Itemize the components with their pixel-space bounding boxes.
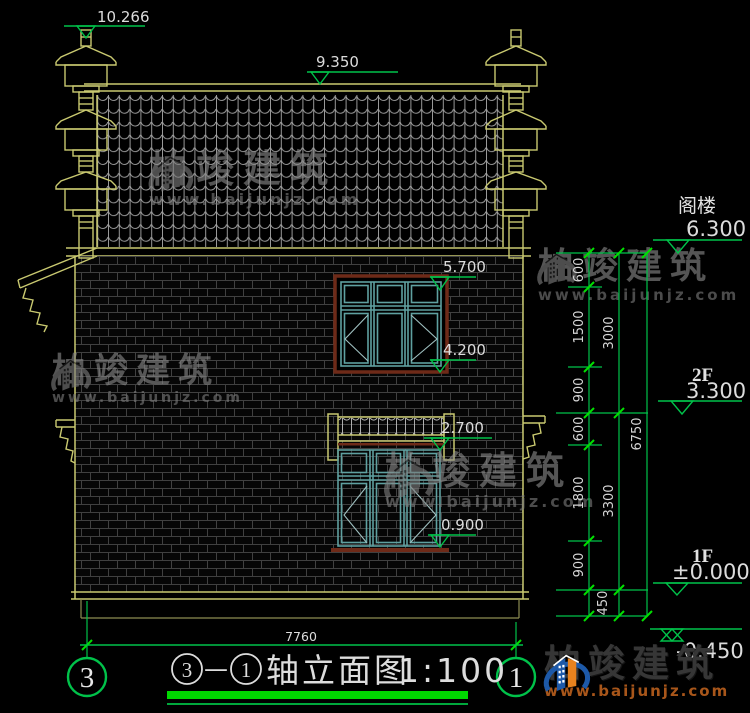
dimension-annotations: 7760 3 1 10.266 9.350 5.700 4.200 2.700 …	[0, 0, 750, 713]
axis-bubble-right-label: 1	[509, 662, 524, 694]
dim-subtotal-3000: 3000	[602, 316, 617, 349]
elev-finial-top: 10.266	[97, 8, 150, 26]
dim-total-6750: 6750	[630, 417, 645, 450]
level-1f-value: ±0.000	[672, 560, 750, 584]
dim-seg-900a: 900	[572, 378, 587, 403]
bottom-width-dim: 7760	[285, 629, 317, 644]
dim-seg-1800: 1800	[572, 476, 587, 509]
axis-bubble-left-label: 3	[80, 662, 95, 694]
dim-seg-600b: 600	[572, 417, 587, 442]
title-axis-start: 3	[182, 658, 193, 682]
dim-subtotal-3300: 3300	[602, 484, 617, 517]
title-dash: —	[204, 655, 228, 683]
dim-seg-900b: 900	[572, 553, 587, 578]
level-attic-value: 6.300	[686, 217, 746, 241]
elev-ridge: 9.350	[316, 53, 359, 71]
elev-upper-window-bottom: 4.200	[443, 341, 486, 359]
cad-elevation-canvas: 柏竣建筑 www.baijunjz.com 柏竣建筑 www.baijunjz.…	[0, 0, 750, 713]
elev-canopy-top: 2.700	[441, 419, 484, 437]
title-underline-bar	[167, 691, 468, 699]
elevation-texts: 10.266 9.350 5.700 4.200 2.700 0.900 阁楼 …	[97, 8, 750, 663]
dimension-labels: 600 1500 900 600 1800 900 450 3000 3300 …	[572, 258, 645, 616]
elev-lower-window-bottom: 0.900	[441, 516, 484, 534]
dim-seg-1500: 1500	[572, 310, 587, 343]
brand-logo: 柏竣建筑 www.baijunjz.com	[540, 645, 729, 700]
brand-logo-icon	[540, 645, 594, 705]
level-attic-label: 阁楼	[678, 195, 716, 217]
title-axis-end: 1	[241, 658, 252, 682]
elevation-symbols	[64, 26, 742, 641]
dim-seg-450: 450	[596, 591, 611, 616]
drawing-title: 3 — 1 轴立面图 1:100	[167, 651, 508, 704]
title-scale: 1:100	[398, 651, 508, 690]
dim-seg-600a: 600	[572, 258, 587, 283]
level-2f-value: 3.300	[686, 379, 746, 403]
title-name: 轴立面图	[266, 651, 410, 690]
elev-upper-window-top: 5.700	[443, 258, 486, 276]
